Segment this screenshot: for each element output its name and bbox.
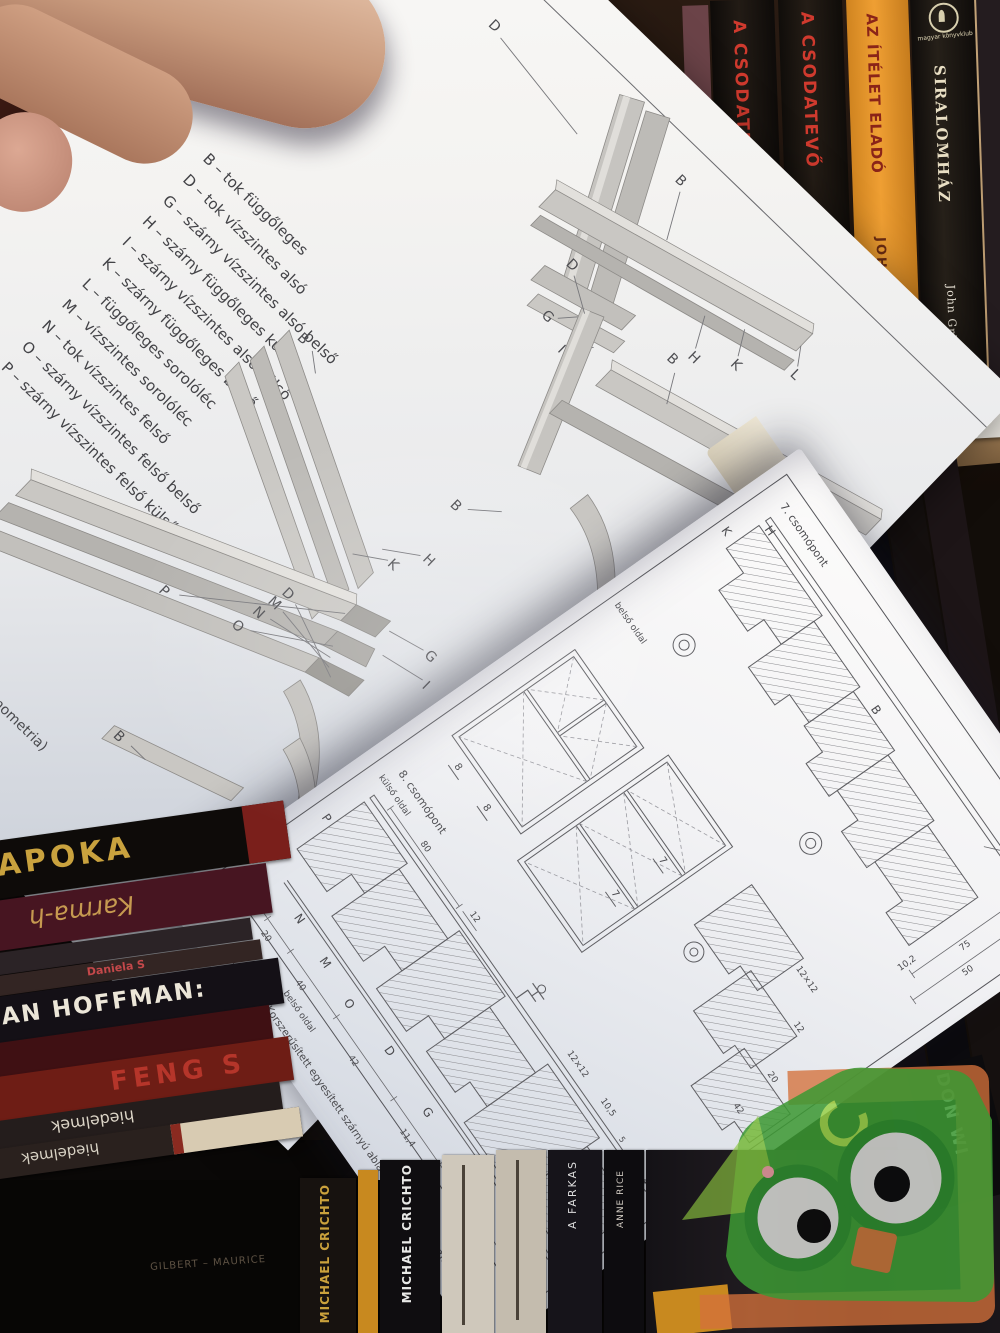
svg-text:H: H	[419, 551, 438, 570]
svg-text:8: 8	[480, 802, 493, 814]
mascot-head	[682, 1068, 994, 1302]
svg-text:D: D	[485, 17, 504, 36]
svg-text:G: G	[421, 647, 440, 666]
eye-pupil-icon	[797, 1209, 831, 1243]
magyar-konyvklub-logo	[928, 2, 959, 33]
svg-text:L: L	[787, 366, 804, 383]
mascot-beak	[850, 1226, 897, 1273]
book-spine-white-1	[442, 1155, 494, 1333]
svg-text:8: 8	[451, 761, 464, 773]
svg-text:80: 80	[418, 839, 433, 854]
svg-text:7: 7	[656, 855, 669, 867]
svg-text:B: B	[671, 172, 689, 190]
svg-text:12: 12	[467, 910, 482, 925]
book-title: A FARKAS	[566, 1160, 579, 1229]
node7-label: 7. csomópont	[777, 500, 831, 569]
svg-text:P: P	[155, 583, 172, 600]
svg-text:I: I	[419, 678, 433, 692]
inner-side-label: belső oldal	[612, 601, 648, 647]
book-author: ANNE RICE	[616, 1170, 626, 1228]
svg-text:M: M	[317, 954, 334, 971]
book-title: hiedelmek	[20, 1139, 100, 1168]
svg-text:B: B	[663, 350, 681, 368]
book-title: AZ ÍTÉLET ELADÓ	[863, 13, 887, 174]
svg-text:10,2: 10,2	[896, 954, 918, 974]
book-author: MICHAEL CRICHTO	[318, 1184, 332, 1323]
svg-text:O: O	[341, 996, 358, 1012]
pink-dot	[762, 1166, 774, 1178]
svg-text:B: B	[447, 497, 465, 515]
book-title: SIRALOMHÁZ	[930, 65, 953, 204]
book-title: APOKA	[0, 830, 136, 884]
svg-text:75: 75	[958, 939, 973, 954]
svg-text:12×12: 12×12	[564, 1049, 590, 1080]
book-title: GILBERT – MAURICE	[150, 1254, 267, 1273]
book-spine-yellow	[358, 1170, 378, 1333]
svg-text:11,4: 11,4	[397, 1127, 417, 1149]
book-spine-farkas: A FARKAS	[548, 1150, 602, 1333]
book-title: A CSODATEVŐ	[796, 11, 821, 169]
svg-text:K: K	[718, 524, 735, 539]
book-spine-crichton-1: MICHAEL CRICHTO	[300, 1178, 356, 1333]
book-spine-white-2	[496, 1150, 546, 1333]
svg-text:G: G	[419, 1105, 436, 1121]
publisher-label: magyar könyvklub	[917, 30, 973, 43]
book-spine-anne-rice: ANNE RICE	[604, 1150, 644, 1333]
svg-text:D: D	[381, 1043, 398, 1059]
eye-pupil-icon	[874, 1166, 910, 1202]
svg-text:5: 5	[617, 1135, 627, 1144]
svg-text:50: 50	[961, 964, 976, 979]
svg-text:42: 42	[345, 1054, 360, 1069]
book-title: Karma-h	[27, 890, 136, 933]
svg-text:12×12: 12×12	[793, 965, 819, 996]
svg-text:B: B	[868, 703, 884, 718]
svg-text:7: 7	[609, 888, 622, 900]
svg-text:10,5: 10,5	[598, 1097, 618, 1119]
svg-text:D: D	[563, 256, 582, 275]
svg-text:P: P	[319, 811, 335, 825]
watermark-mascot	[640, 1060, 1000, 1333]
googly-eye-icon	[751, 1171, 845, 1265]
svg-text:B: B	[294, 330, 312, 348]
photo-stage: A CSODATEVŐ JOHN GRISHAM A CSODATEVŐ JOH…	[0, 0, 1000, 1333]
book-spine-crichton-2: MICHAEL CRICHTO	[380, 1160, 440, 1333]
book-author: MICHAEL CRICHTO	[400, 1164, 414, 1303]
svg-text:40: 40	[293, 978, 308, 993]
svg-text:K: K	[384, 556, 402, 574]
